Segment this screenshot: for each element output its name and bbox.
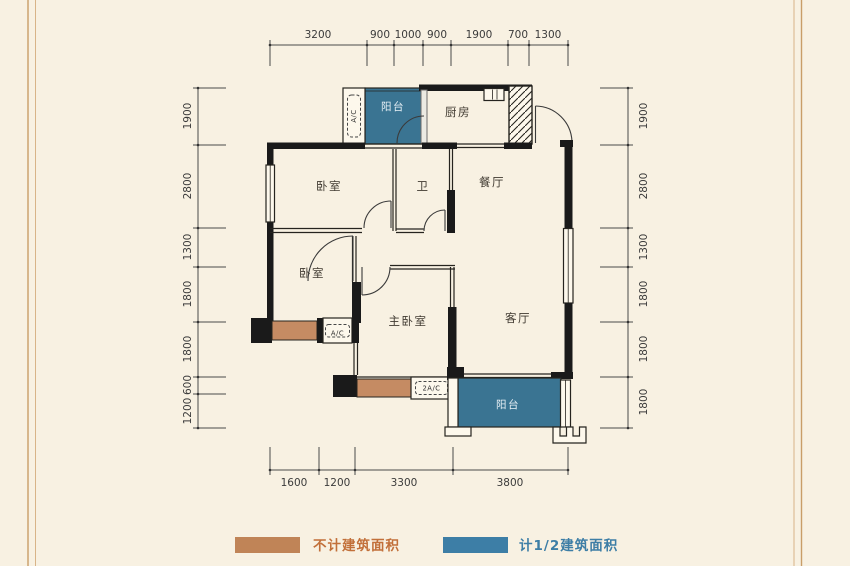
bathroom-door-arc [424,210,445,231]
legend-label-not-counted: 不计建筑面积 [313,537,400,554]
dim-bottom-2: 3300 [391,477,418,489]
balcony-crenellation [553,427,586,443]
room-label-living: 客厅 [505,311,531,325]
room-label-bedroom-top: 卧室 [316,179,342,193]
dim-top-2: 1000 [395,29,422,41]
legend: 不计建筑面积 计1/2建筑面积 [235,537,618,554]
dim-top-0: 3200 [305,29,332,41]
window-right [564,229,574,304]
floorplan-page: { "plan": { "room_labels": { "balcony_to… [0,0,850,566]
legend-label-half-counted: 计1/2建筑面积 [519,537,618,554]
balcony-top-area [365,88,422,144]
room-label-bathroom: 卫 [417,179,430,193]
balcony-pier-foot [445,427,471,436]
ac-platform-mid [272,321,317,340]
legend-swatch-orange [235,537,300,553]
dim-left-5: 600 [182,375,194,395]
dim-right-5: 1800 [638,389,650,416]
ac-label-bottom: 2A/C [422,385,440,393]
floor-plan: A/C [251,85,586,444]
bedroom-top-door-arc [364,201,391,228]
dim-bottom-1: 1200 [324,477,351,489]
dim-left-3: 1800 [182,281,194,308]
room-label-kitchen: 厨房 [445,105,471,119]
dim-top-5: 700 [508,29,528,41]
ac-platform-bottom [357,379,411,397]
dim-top-6: 1300 [535,29,562,41]
dim-left-2: 1300 [182,234,194,261]
dim-right-3: 1800 [638,281,650,308]
dimension-bottom: 1600 1200 3300 3800 [269,447,570,489]
ac-label-top: A/C [350,109,358,122]
ac-label-mid: A/C [331,330,344,338]
floorplan-canvas: 3200 900 1000 900 1900 700 1300 1600 120… [0,0,850,566]
room-label-dining: 餐厅 [479,175,505,189]
balcony-right-wall [561,380,571,427]
dim-bottom-0: 1600 [281,477,308,489]
dim-right-2: 1300 [638,234,650,261]
dim-right-0: 1900 [638,103,650,130]
window-left [266,165,275,222]
dim-right-1: 2800 [638,173,650,200]
dimension-left: 1900 2800 1300 1800 1800 600 1200 [182,87,226,430]
room-label-bedroom-mid: 卧室 [299,266,325,280]
dim-left-4: 1800 [182,336,194,363]
stove-icon [484,89,504,101]
legend-swatch-blue [443,537,508,553]
master-door-arc [362,267,390,295]
dim-left-6: 1200 [182,398,194,425]
dim-top-1: 900 [370,29,390,41]
entry-door-arc [536,106,573,143]
room-label-master-bedroom: 主卧室 [389,314,428,328]
dim-bottom-3: 3800 [497,477,524,489]
room-label-balcony-bottom: 阳台 [496,398,520,411]
dimension-top: 3200 900 1000 900 1900 700 1300 [269,29,570,66]
dimension-right: 1900 2800 1300 1800 1800 1800 [600,87,650,430]
dim-left-0: 1900 [182,103,194,130]
hatch-shaft [509,86,532,144]
dim-right-4: 1800 [638,336,650,363]
dim-top-3: 900 [427,29,447,41]
dim-top-4: 1900 [466,29,493,41]
dim-left-1: 2800 [182,173,194,200]
room-label-balcony-top: 阳台 [381,100,405,113]
